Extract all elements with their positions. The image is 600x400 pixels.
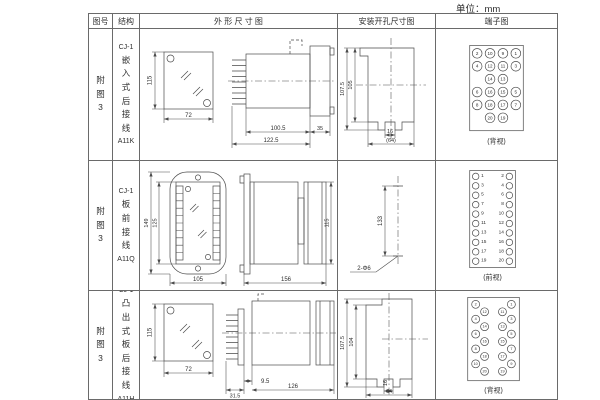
terminal-circle [506,239,513,246]
header-terminal: 端子图 [436,14,557,28]
terminal-number: 11 [481,220,486,226]
terminal-number: 17 [500,354,504,358]
lifting-hook [290,40,302,54]
terminal-number: 19 [500,115,506,120]
panel-cutout [360,48,414,130]
terminal-number: 14 [483,325,487,329]
terminal-circle [506,229,513,236]
model-label: CJ-1 [119,291,134,294]
dim-side-length: 126 [288,384,299,390]
a11h-outline-drawing: 115 72 9.5 31.5 1 [140,291,337,399]
terminal-number: 17 [500,102,506,107]
dim-front-width: 72 [185,367,192,373]
table-row-a11q: 附图3 CJ-1 板前接线 A11Q [89,161,557,291]
terminal-number: 20 [499,257,505,263]
terminal-circle [506,191,513,198]
terminal-circle [472,220,479,227]
terminal-circle [506,201,513,208]
terminal-circle [472,229,479,236]
terminal-number: 18 [488,102,494,107]
type-code: A11K [118,138,135,145]
model-label: CJ-1 [119,44,134,51]
terminal-number: 7 [515,102,518,107]
spec-table: 图号 结构 外 形 尺 寸 图 安装开孔尺寸图 端子图 附图3 CJ-1 嵌入式… [88,13,558,400]
terminal-circle [472,257,479,264]
terminal-number: 2 [501,172,504,178]
terminal-number: 5 [481,191,484,197]
terminal-number: 20 [488,115,494,120]
table-row-a11h: 附图3 CJ-1 凸出式板后接线 A11H 115 [89,291,557,399]
terminal-number: 10 [499,210,505,216]
terminal-number: 7 [510,347,512,351]
terminal-number: 1 [510,302,512,306]
hole-spec: 2-Φ6 [357,266,371,272]
terminal-number: 13 [500,325,504,329]
dim-cutout-outer: 107.5 [340,336,346,350]
dim-notch: 16 [383,380,389,386]
terminal-number: 16 [499,238,505,244]
structure-text: 嵌入式后接线 [122,54,131,136]
terminal-number: 5 [510,332,512,336]
hatch-mark [190,204,199,212]
terminal-number: 12 [483,310,487,314]
mounting-cell: 107.5 104 16 64 [338,291,436,399]
terminal-number: 15 [500,89,506,94]
dim-front-outer: 149 [144,218,150,227]
fig-no-text: 附图3 [96,325,105,366]
terminal-strip [213,193,220,252]
dim-side-pins: 31.5 [230,394,241,400]
datasheet-page: 单位：mm 图号 结构 外 形 尺 寸 图 安装开孔尺寸图 端子图 附图3 CJ… [0,0,600,400]
terminal-cell: 1234567891011121314151617181920 (前视) [436,161,557,290]
structure-cell: CJ-1 凸出式板后接线 A11H [113,291,140,399]
outline-cell: 149 125 105 156 1 [140,161,338,290]
terminal-number: 9 [510,362,512,366]
view-label: (前视) [483,272,502,281]
mounting-cell: 107.5 105 16 (64) [338,29,436,160]
outline-cell: 115 72 9.5 31.5 1 [140,291,338,399]
terminal-number: 15 [481,238,487,244]
terminal-number: 15 [500,340,504,344]
terminal-number: 11 [501,63,506,68]
hatch-mark [193,87,203,96]
terminal-circle [472,248,479,255]
hatch-mark [192,340,202,349]
fig-no-text: 附图3 [96,74,105,115]
structure-text: 板前接线 [122,198,131,252]
terminal-circle [506,210,513,217]
terminal-number: 9 [502,50,505,55]
dim-notch: 16 [387,129,393,135]
dim-hole-span: 133 [378,215,384,226]
terminal-number: 3 [515,63,518,68]
terminal-circles: 1234567891011121314151617181920 [472,172,512,264]
hatch-mark [181,71,191,80]
terminal-number: 14 [499,229,505,235]
fig-no-cell: 附图3 [89,161,113,290]
terminal-pins [232,60,246,104]
dim-side-flange: 35 [317,126,323,132]
terminal-number: 8 [501,201,504,207]
view-label: (背视) [484,386,503,395]
a11k-outline-drawing: 115 72 100.5 35 122.5 [140,30,337,160]
terminal-number: 10 [474,362,478,366]
terminal-number: 6 [501,191,504,197]
fig-no-cell: 附图3 [89,29,113,160]
a11k-mounting-drawing: 107.5 105 16 (64) [338,30,435,160]
terminal-circle [506,182,513,189]
terminal-number: 20 [483,369,487,373]
terminal-number: 13 [481,229,487,235]
a11q-mounting-drawing: 133 2-Φ6 [338,162,435,290]
terminal-cell: 2109141211314136161558181772019 (背视) [436,29,557,160]
terminal-number: 11 [500,310,504,314]
dim-side-offset: 9.5 [261,379,270,385]
terminal-pins [226,315,238,359]
dim-cutout-inner: 104 [349,337,355,346]
terminal-number: 4 [501,182,504,188]
terminal-circle [472,210,479,217]
dim-cutout-inner: 105 [348,80,354,89]
terminal-number: 6 [475,332,477,336]
header-fig-no: 图号 [89,14,113,28]
terminal-number: 12 [488,63,494,68]
hatch-mark [180,324,190,333]
terminal-number: 13 [500,76,506,81]
view-label: (背视) [487,136,506,145]
terminal-circle [506,257,513,264]
dim-side-height: 115 [325,218,331,227]
table-row-a11k: 附图3 CJ-1 嵌入式后接线 A11K 115 [89,29,557,161]
dim-cutout-outer: 107.5 [340,82,346,96]
terminal-circle [472,173,479,180]
dim-front-width: 105 [193,277,204,283]
terminal-number: 4 [476,63,479,68]
terminal-number: 14 [488,76,494,81]
dim-front-width: 72 [185,113,192,119]
terminal-number: 9 [481,210,484,216]
dim-side-length: 156 [281,277,292,283]
terminal-number: 8 [476,102,479,107]
terminal-circles: 2468101214161820111315171913579 [472,300,516,375]
dim-cutout-width: 64 [386,389,392,395]
fig-no-cell: 附图3 [89,291,113,399]
header-mounting: 安装开孔尺寸图 [338,14,436,28]
terminal-strip [176,193,183,252]
structure-cell: CJ-1 板前接线 A11Q [113,161,140,290]
terminal-number: 2 [475,302,477,306]
terminal-circle [506,248,513,255]
terminal-circle [506,220,513,227]
terminal-number: 17 [481,248,487,254]
terminal-number: 12 [499,220,505,226]
a11h-mounting-drawing: 107.5 104 16 64 [338,291,435,399]
dim-side-total: 122.5 [263,138,279,144]
terminal-number: 8 [475,347,477,351]
terminal-number: 1 [481,172,484,178]
terminal-number: 18 [483,354,487,358]
dim-side-body: 100.5 [270,126,286,132]
terminal-cell: 2468101214161820111315171913579 (背视) [436,291,557,399]
fig-no-text: 附图3 [96,205,105,246]
terminal-circle [472,201,479,208]
type-code: A11Q [117,256,134,263]
header-structure: 结构 [113,14,140,28]
terminal-circle [472,239,479,246]
a11k-terminal-diagram: 2109141211314136161558181772019 (背视) [436,30,557,160]
terminal-number: 2 [476,50,479,55]
header-outline: 外 形 尺 寸 图 [140,14,338,28]
terminal-number: 16 [488,89,494,94]
terminal-circle [472,191,479,198]
terminal-number: 3 [481,182,484,188]
a11q-terminal-diagram: 1234567891011121314151617181920 (前视) [436,162,557,290]
terminal-number: 1 [515,50,518,55]
terminal-circles: 2109141211314136161558181772019 [472,48,520,122]
lifting-hook [258,294,266,301]
hatch-mark [198,230,207,238]
terminal-number: 4 [475,317,477,321]
model-label: CJ-1 [119,188,134,195]
dim-front-height: 115 [148,75,154,85]
outline-cell: 115 72 100.5 35 122.5 [140,29,338,160]
dim-front-height: 115 [148,327,154,337]
terminal-number: 18 [499,248,505,254]
terminal-number: 19 [481,257,487,263]
terminal-circle [506,173,513,180]
terminal-number: 10 [488,50,494,55]
table-header-row: 图号 结构 外 形 尺 寸 图 安装开孔尺寸图 端子图 [89,14,557,29]
a11h-terminal-diagram: 2468101214161820111315171913579 (背视) [436,291,557,399]
terminal-number: 19 [500,369,504,373]
a11q-outline-drawing: 149 125 105 156 1 [140,162,337,290]
terminal-number: 16 [483,340,487,344]
structure-cell: CJ-1 嵌入式后接线 A11K [113,29,140,160]
mounting-cell: 133 2-Φ6 [338,161,436,290]
dim-front-inner: 125 [153,218,159,227]
terminal-circle [472,182,479,189]
dim-cutout-width: (64) [386,138,396,144]
terminal-number: 3 [510,317,512,321]
terminal-number: 5 [515,89,518,94]
terminal-number: 6 [476,89,479,94]
terminal-number: 7 [481,201,484,207]
type-code: A11H [118,396,135,399]
structure-text: 凸出式板后接线 [122,297,131,392]
